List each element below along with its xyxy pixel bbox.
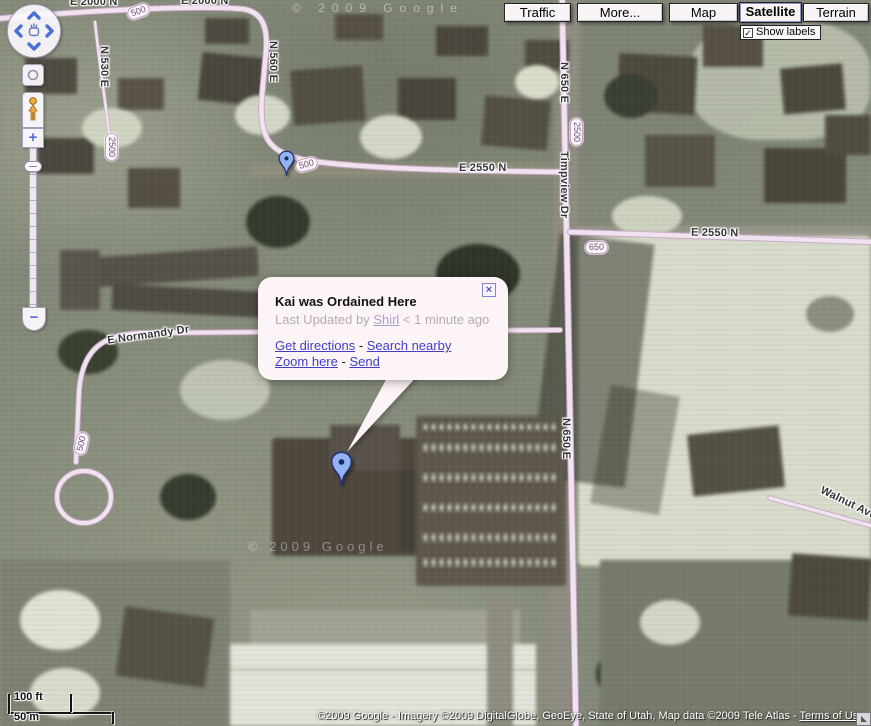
road-label-e2550n-east: E 2550 N <box>691 227 739 240</box>
zoom-out-button[interactable]: − <box>22 307 46 331</box>
show-labels-text: Show labels <box>756 26 815 39</box>
road-label-e2000n-west: E 2000 N <box>70 0 117 8</box>
show-labels-toggle[interactable]: ✓ Show labels <box>740 25 821 40</box>
terrain-button[interactable]: Terrain <box>803 3 869 22</box>
send-link[interactable]: Send <box>349 354 379 369</box>
pegman-icon <box>25 96 41 124</box>
route-badge-2500-east: 2500 <box>570 118 583 146</box>
search-nearby-link[interactable]: Search nearby <box>367 338 452 353</box>
copyright-text: ©2009 Google - Imagery ©2009 DigitalGlob… <box>317 710 800 722</box>
scale-metric-label: 50 m <box>14 711 39 723</box>
road-label-n530e: N 530 E <box>98 46 110 87</box>
bubble-links-row1: Get directions - Search nearby <box>275 338 498 354</box>
overview-map-toggle[interactable] <box>856 712 871 726</box>
map-pin-north[interactable] <box>278 150 295 178</box>
street-view-pegman[interactable] <box>22 92 44 128</box>
more-button[interactable]: More... <box>577 3 663 22</box>
author-link[interactable]: Shirl <box>373 312 399 327</box>
google-maps-window: © 2009 Google © 2009 Google E 2000 N E 2… <box>0 0 871 726</box>
route-badge-650: 650 <box>585 241 608 254</box>
checkbox-checked-icon[interactable]: ✓ <box>743 28 753 38</box>
zoom-here-link[interactable]: Zoom here <box>275 354 338 369</box>
attribution: ©2009 Google - Imagery ©2009 DigitalGlob… <box>317 710 864 722</box>
updated-prefix: Last Updated by <box>275 312 373 327</box>
link-separator: - <box>355 338 367 353</box>
center-circle-icon <box>26 68 40 82</box>
pan-up-button[interactable] <box>15 4 53 56</box>
close-icon[interactable]: × <box>482 283 496 297</box>
link-separator: - <box>338 354 350 369</box>
updated-suffix: < 1 minute ago <box>399 312 489 327</box>
road-label-n560e: N 560 E <box>267 41 279 82</box>
traffic-button[interactable]: Traffic <box>504 3 571 22</box>
bubble-title: Kai was Ordained Here <box>275 294 498 309</box>
map-button[interactable]: Map <box>669 3 738 22</box>
zoom-in-button[interactable]: + <box>22 128 44 148</box>
map-pin-kai[interactable] <box>330 450 353 489</box>
satellite-button[interactable]: Satellite <box>739 2 802 23</box>
get-directions-link[interactable]: Get directions <box>275 338 355 353</box>
route-badge-2500-west: 2500 <box>105 133 118 161</box>
road-label-timpview-dr: Timpview Dr <box>558 151 570 218</box>
road-label-n650e-top: N 650 E <box>558 62 570 103</box>
road-label-e2550n-west: E 2550 N <box>459 162 506 174</box>
road-label-n650e-bottom: N 650 E <box>560 418 572 459</box>
zoom-slider-handle[interactable] <box>24 161 42 172</box>
bubble-links-row2: Zoom here - Send <box>275 354 498 370</box>
reset-view-button[interactable] <box>22 64 44 86</box>
info-bubble: × Kai was Ordained Here Last Updated by … <box>258 277 508 380</box>
scale-imperial-label: 100 ft <box>14 691 43 703</box>
terms-of-use-link[interactable]: Terms of Use <box>800 710 865 722</box>
road-label-e2000n-east: E 2000 N <box>181 0 228 7</box>
bubble-updated-line: Last Updated by Shirl < 1 minute ago <box>275 312 498 327</box>
